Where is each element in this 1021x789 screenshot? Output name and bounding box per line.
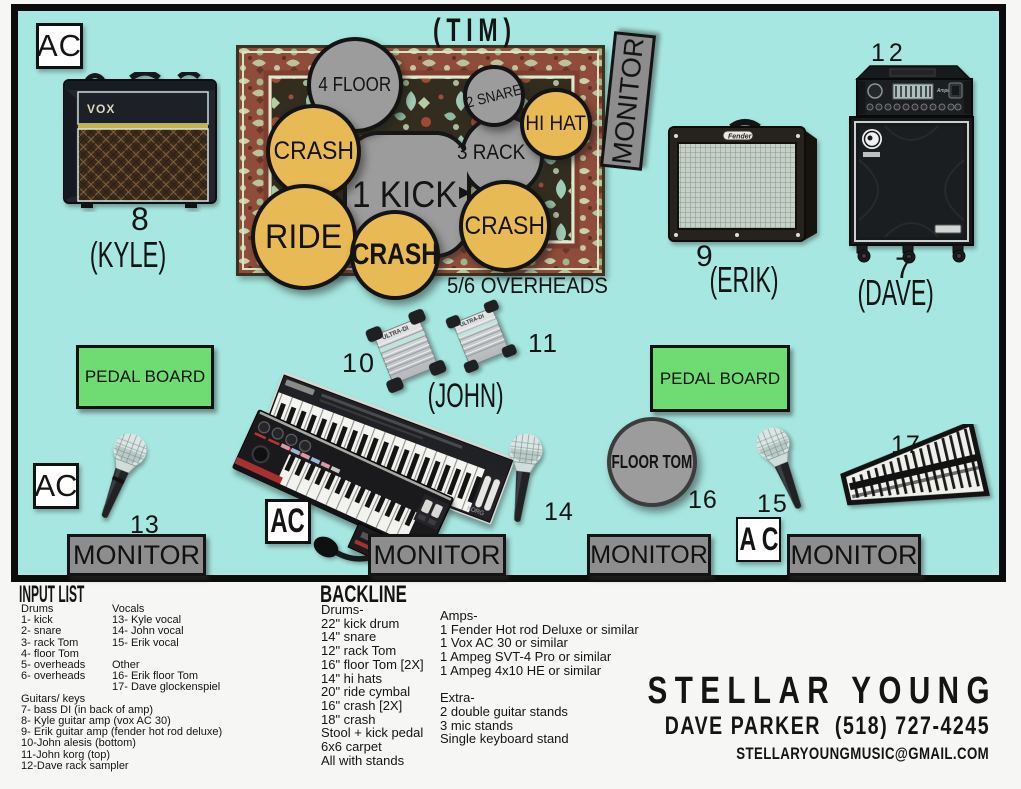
svg-text:VOX: VOX [87, 102, 115, 116]
svg-text:Fender: Fender [728, 134, 753, 141]
